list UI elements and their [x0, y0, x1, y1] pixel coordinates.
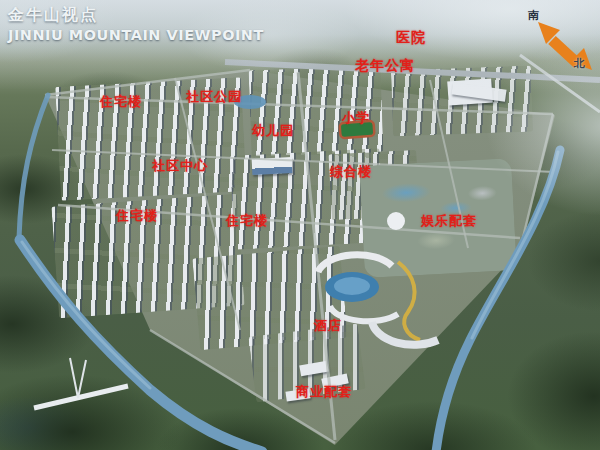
compass-north-label: 北	[574, 56, 585, 71]
bridge	[34, 358, 128, 408]
map-label-hotel: 酒店	[314, 317, 342, 335]
map-label-residential-c: 住宅楼	[226, 212, 268, 230]
map-label-community-park: 社区公园	[186, 88, 242, 106]
map-label-commercial-facilities: 商业配套	[296, 383, 352, 401]
lake-highlight	[334, 277, 370, 295]
map-label-community-center: 社区中心	[152, 157, 208, 175]
compass-south-label: 南	[528, 8, 539, 23]
map-label-hospital: 医院	[396, 29, 426, 47]
title-english: JINNIU MOUNTAIN VIEWPOINT	[8, 27, 264, 43]
canal	[19, 95, 48, 238]
map-label-entertainment-facilities: 娱乐配套	[421, 212, 477, 230]
map-label-primary-school: 小学	[342, 109, 370, 127]
dome-building	[387, 212, 405, 230]
hotel-building-arc	[318, 255, 392, 272]
rivers	[19, 95, 560, 450]
map-label-complex-building: 综合楼	[330, 163, 372, 181]
river-highlights	[22, 152, 558, 388]
title-chinese: 金牛山视点	[8, 5, 264, 26]
map-label-residential-a: 住宅楼	[100, 93, 142, 111]
viewpoint-title: 金牛山视点 JINNIU MOUNTAIN VIEWPOINT	[8, 5, 264, 43]
map-label-residential-b: 住宅楼	[116, 207, 158, 225]
aerial-rendering: 金牛山视点 JINNIU MOUNTAIN VIEWPOINT 南 北 医院老年…	[0, 0, 600, 450]
right-river	[436, 150, 560, 450]
map-label-kindergarten: 幼儿园	[252, 122, 294, 140]
map-label-senior-apartments: 老年公寓	[355, 57, 415, 75]
golden-creek	[398, 262, 420, 340]
rail-line	[520, 55, 600, 112]
